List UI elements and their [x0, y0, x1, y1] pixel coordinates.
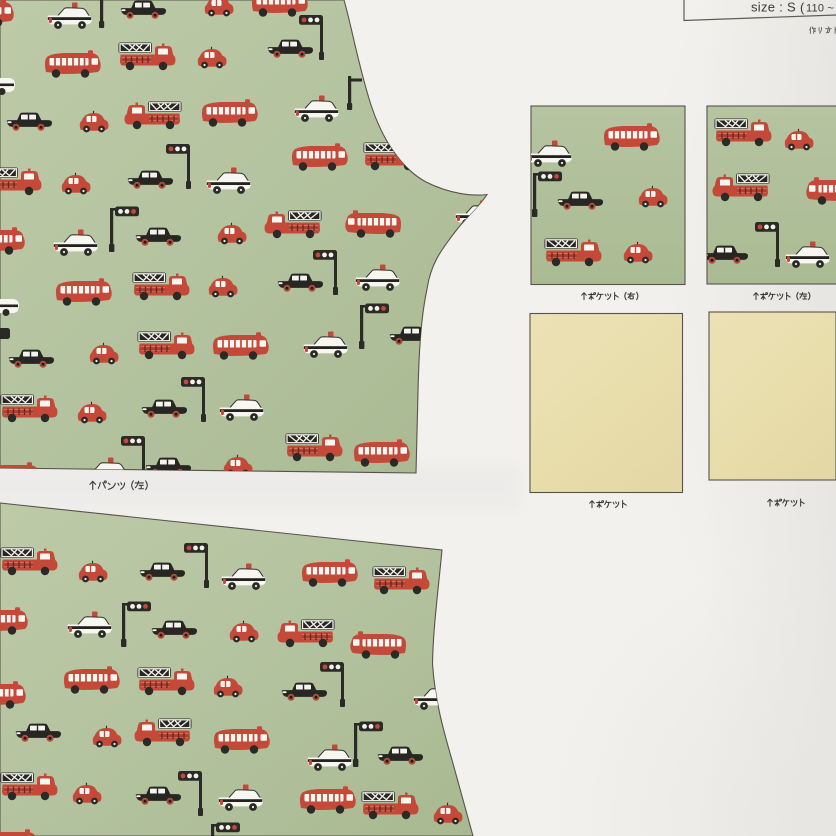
svg-text:(: ( [800, 0, 805, 15]
svg-text:size : S: size : S [751, 0, 796, 15]
svg-text:110 ~: 110 ~ [806, 3, 834, 15]
